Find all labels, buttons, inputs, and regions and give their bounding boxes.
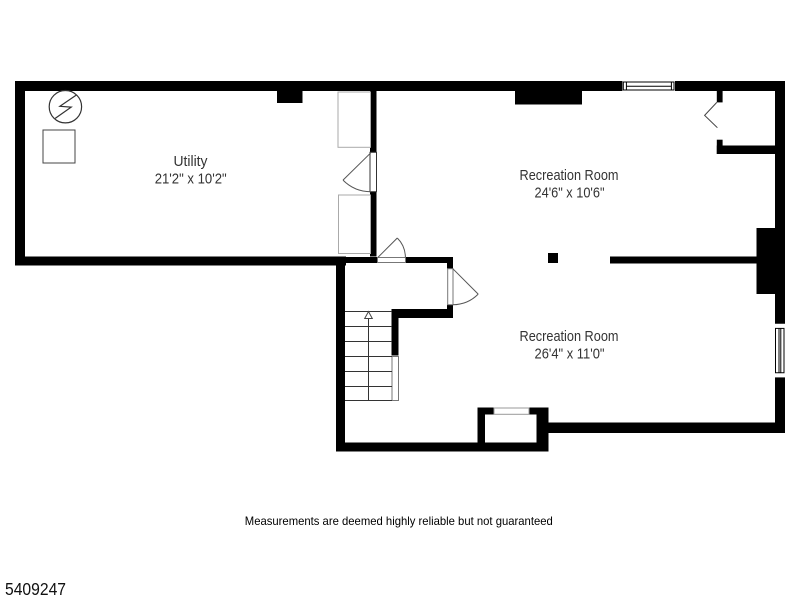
- svg-text:5409247: 5409247: [5, 579, 66, 599]
- svg-text:26'4" x 11'0": 26'4" x 11'0": [535, 346, 605, 363]
- svg-text:Recreation Room: Recreation Room: [520, 328, 619, 345]
- svg-text:24'6" x 10'6": 24'6" x 10'6": [535, 185, 605, 202]
- svg-text:Utility: Utility: [174, 153, 208, 170]
- svg-text:Measurements are deemed highly: Measurements are deemed highly reliable …: [245, 514, 553, 528]
- svg-text:21'2" x 10'2": 21'2" x 10'2": [155, 171, 227, 188]
- svg-text:Recreation Room: Recreation Room: [520, 167, 619, 184]
